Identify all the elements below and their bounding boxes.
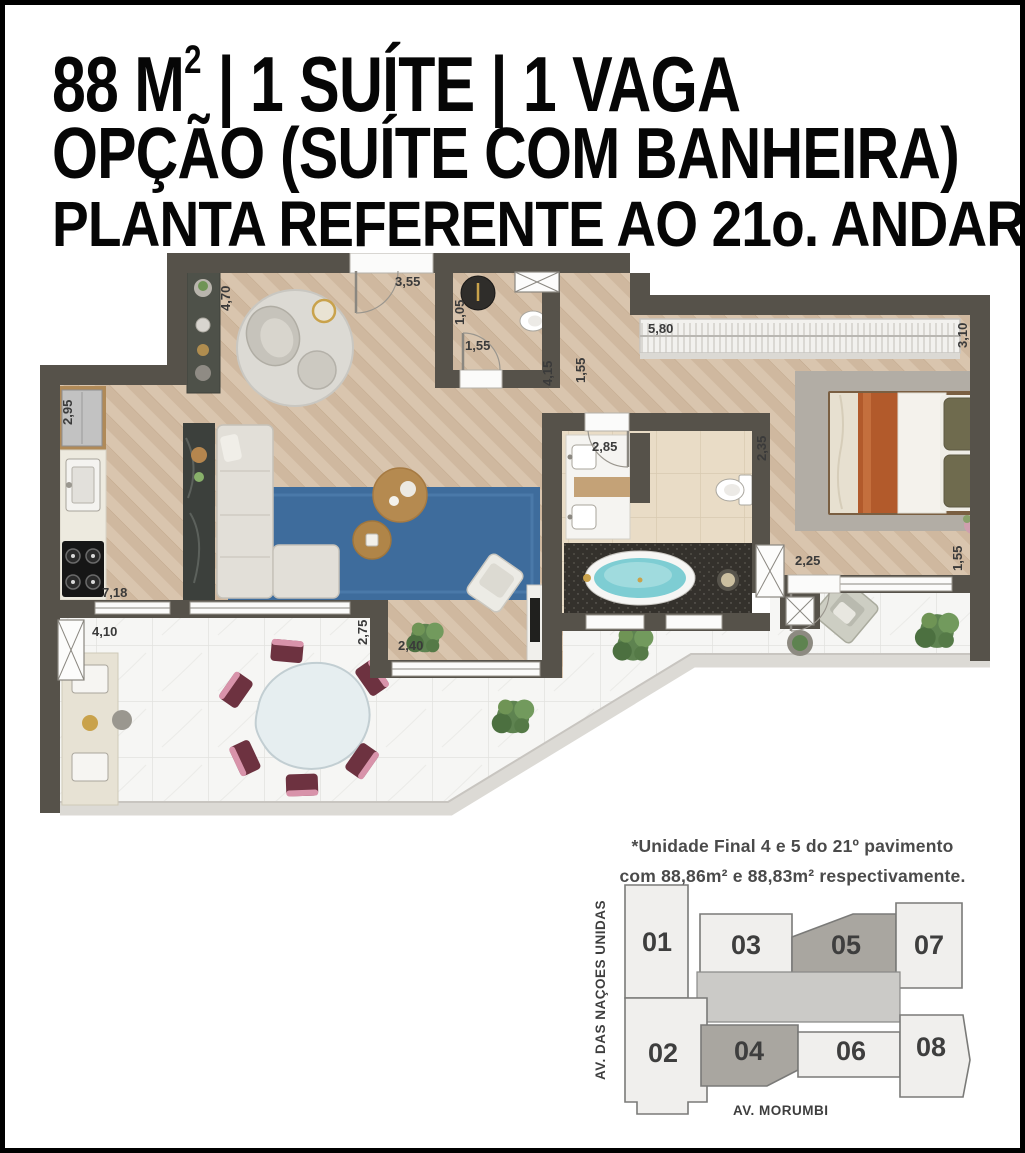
measurement-kitchen-depth: 2,95	[60, 400, 75, 425]
bath-door-opening	[585, 413, 629, 431]
measurement-vanity-width: 2,85	[592, 439, 617, 454]
measurement-living-width: 7,18	[102, 585, 127, 600]
gold-decor	[82, 715, 98, 731]
measurement-suite-depth: 3,10	[955, 323, 970, 348]
unit-08-label: 08	[916, 1032, 946, 1062]
media-wall	[183, 423, 215, 603]
title-sup: 2	[184, 38, 201, 82]
balcony-door-opening	[788, 575, 840, 593]
closet	[640, 319, 960, 359]
bed	[828, 391, 990, 515]
measurement-closet-width: 5,80	[648, 321, 673, 336]
measurement-terrace-counter: 4,10	[92, 624, 117, 639]
entry-console	[187, 268, 220, 393]
vanity-sink	[572, 505, 596, 529]
unit-04-label: 04	[734, 1036, 764, 1066]
measurement-bath-depth: 2,35	[754, 436, 769, 461]
page-subtitle-option: OPÇÃO (SUÍTE COM BANHEIRA)	[52, 118, 959, 190]
floor-plan-page: 88 M2 | 1 SUÍTE | 1 VAGA OPÇÃO (SUÍTE CO…	[0, 0, 1025, 1153]
keyplan-diagram: 01 03 05 07 02 04 06 08 AV. DAS NAÇÕES U…	[595, 880, 995, 1120]
unit-05-label: 05	[831, 930, 861, 960]
measurement-balcony-depth: 1,55	[950, 546, 965, 571]
street-label-bottom: AV. MORUMBI	[733, 1103, 829, 1118]
street-label-left: AV. DAS NAÇÕES UNIDAS	[595, 900, 608, 1080]
unit-06-label: 06	[836, 1036, 866, 1066]
page-subtitle-floor: PLANTA REFERENTE AO 21o. ANDAR	[52, 192, 1025, 256]
vanity-shelf	[574, 477, 630, 497]
page-title: 88 M2 | 1 SUÍTE | 1 VAGA	[52, 40, 740, 123]
measurement-lavabo-depth: 1,05	[452, 300, 467, 325]
unit-02-label: 02	[648, 1038, 678, 1068]
bath-window	[666, 615, 722, 629]
bath-window	[586, 615, 644, 629]
measurement-hall-length: 4,15	[540, 361, 555, 386]
entry-door-opening	[350, 253, 433, 273]
bathtub	[583, 551, 695, 605]
measurement-entry-width: 3,55	[395, 274, 420, 289]
lavabo-door-opening	[460, 370, 502, 388]
keyplan-core	[697, 972, 900, 1022]
unit-03-label: 03	[731, 930, 761, 960]
unit-07-label: 07	[914, 930, 944, 960]
keyplan-note-line1: *Unidade Final 4 e 5 do 21º pavimento	[565, 836, 1020, 857]
gold-tray-decor	[313, 300, 335, 322]
terrace-sink	[72, 753, 108, 781]
cooktop	[62, 541, 104, 597]
tub-faucet	[583, 574, 591, 582]
measurement-hall-width: 1,55	[573, 358, 588, 383]
measurement-entry-wall: 4,70	[218, 286, 233, 311]
entry-pouf	[298, 351, 336, 389]
floor-plan: 4,70 3,55 1,05 1,55 5,80 3,10 2,95 4,15 …	[40, 253, 1010, 833]
measurement-nook-width: 2,40	[398, 638, 423, 653]
vase	[112, 710, 132, 730]
measurement-balcony-width: 2,25	[795, 553, 820, 568]
measurement-nook-depth: 2,75	[355, 620, 370, 645]
unit-01-label: 01	[642, 927, 672, 957]
measurement-lavabo-width: 1,55	[465, 338, 490, 353]
